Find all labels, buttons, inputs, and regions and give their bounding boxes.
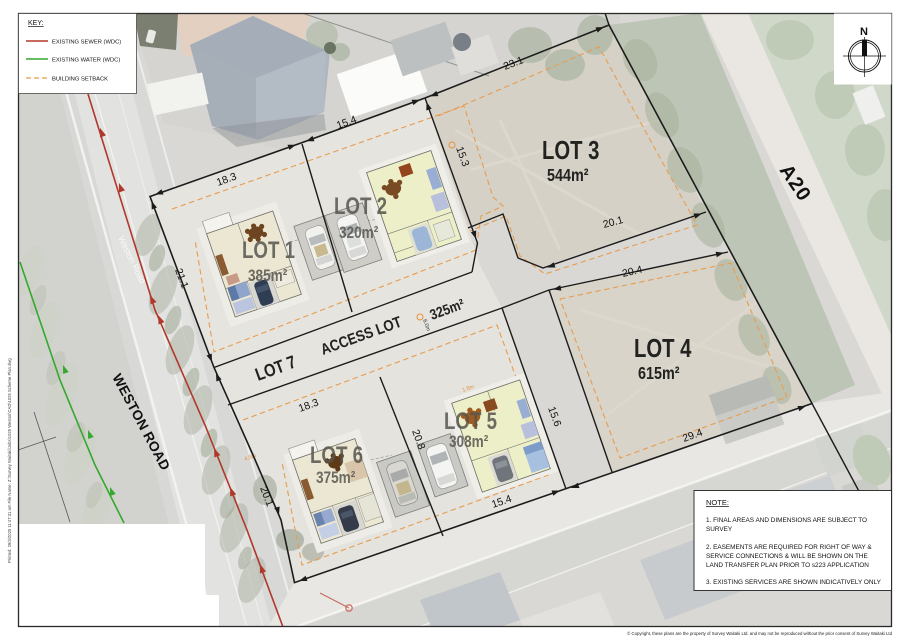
svg-text:544m²: 544m² [547,166,589,186]
svg-text:308m²: 308m² [449,433,488,452]
svg-text:N: N [860,26,868,38]
svg-text:615m²: 615m² [638,364,680,384]
svg-text:LOT 5: LOT 5 [444,408,497,435]
svg-text:EXISTING WATER (WDC): EXISTING WATER (WDC) [52,58,120,64]
svg-text:EXISTING SEWER (WDC): EXISTING SEWER (WDC) [52,40,121,46]
svg-text:LOT 3: LOT 3 [542,136,599,165]
svg-text:LOT 2: LOT 2 [334,193,387,220]
svg-text:Printed: 29/3/2025 11:47:31 am: Printed: 29/3/2025 11:47:31 am File Name… [7,358,12,563]
svg-text:375m²: 375m² [316,469,355,488]
svg-text:LOT 4: LOT 4 [634,334,691,363]
svg-text:KEY:: KEY: [28,20,44,27]
svg-text:3. EXISTING SERVICES ARE SHOWN: 3. EXISTING SERVICES ARE SHOWN INDICATIV… [706,579,882,586]
svg-text:LOT 6: LOT 6 [310,442,363,469]
svg-text:SERVICE CONNECTIONS & WILL BE: SERVICE CONNECTIONS & WILL BE SHOWN ON T… [706,553,868,560]
svg-text:BUILDING SETBACK: BUILDING SETBACK [52,77,108,83]
svg-text:LAND TRANSFER PLAN PRIOR TO s2: LAND TRANSFER PLAN PRIOR TO s223 APPLICA… [706,562,869,569]
svg-text:SURVEY: SURVEY [706,526,733,533]
svg-text:2. EASEMENTS ARE REQUIRED FOR: 2. EASEMENTS ARE REQUIRED FOR RIGHT OF W… [706,544,872,551]
svg-text:385m²: 385m² [248,267,287,286]
svg-text:NOTE:: NOTE: [706,498,729,507]
svg-text:1. FINAL AREAS AND DIMENSIONS: 1. FINAL AREAS AND DIMENSIONS ARE SUBJEC… [706,517,867,524]
svg-text:320m²: 320m² [339,224,378,243]
svg-text:© Copyright, these plans are t: © Copyright, these plans are the propert… [627,631,892,636]
svg-text:LOT 1: LOT 1 [242,237,295,264]
